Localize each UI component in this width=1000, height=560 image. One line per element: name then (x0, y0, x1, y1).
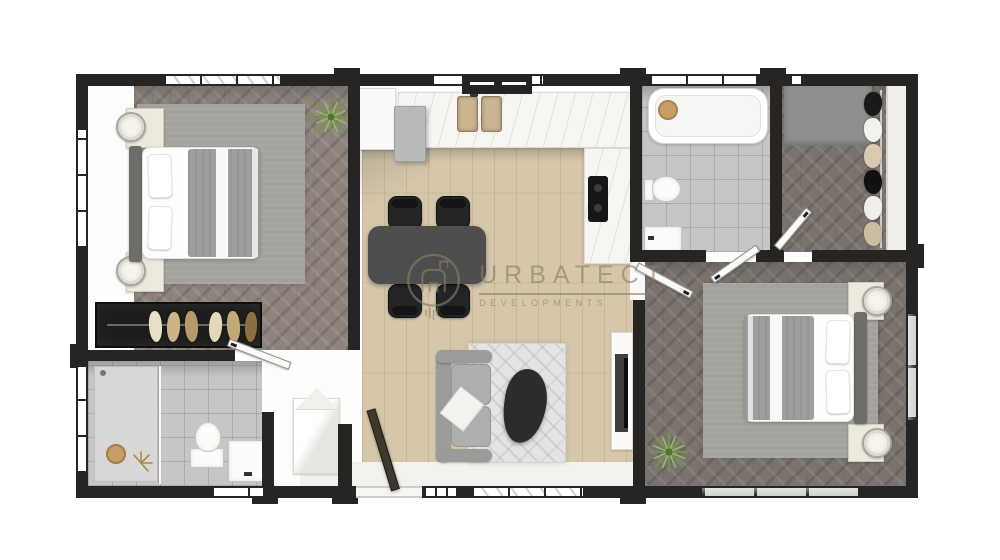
bed-sheet-stripe (252, 149, 258, 257)
dry-branch-decor-icon (126, 448, 156, 478)
exterior-wall (906, 74, 918, 312)
closet-rail (880, 90, 882, 248)
window (210, 486, 265, 498)
table-lamp (862, 428, 892, 458)
interior-wall (348, 84, 360, 350)
hanging-garment (148, 311, 163, 343)
window (76, 128, 88, 250)
vent-slit (502, 82, 526, 85)
hanging-garment (226, 311, 241, 343)
exterior-wall (758, 74, 788, 86)
table-lamp (116, 112, 146, 142)
interior-wall (770, 84, 782, 262)
bed-headboard (854, 312, 867, 424)
bed-headboard (129, 146, 142, 262)
closet-wardrobe-band (886, 86, 906, 252)
window (162, 74, 282, 86)
hanging-garment (166, 312, 181, 343)
fridge (394, 106, 426, 162)
window (788, 74, 803, 86)
toilet-bowl (652, 176, 681, 202)
burner (594, 184, 602, 192)
interior-wall (630, 84, 642, 260)
window (422, 486, 458, 498)
hanging-garment (244, 312, 258, 343)
burner (594, 204, 602, 212)
exterior-wall (585, 486, 700, 498)
wall-pier (620, 498, 646, 504)
interior-wall (338, 424, 352, 486)
window (470, 486, 585, 498)
window (648, 74, 758, 86)
bed-sheet-stripe (748, 316, 753, 420)
vanity-faucet (244, 472, 252, 476)
interior-wall (812, 250, 918, 262)
glazed-window (906, 312, 918, 422)
exterior-wall (545, 74, 648, 86)
exterior-wall (76, 250, 88, 365)
interior-wall (262, 412, 274, 486)
hanging-garment (184, 311, 199, 343)
exterior-wall (803, 74, 918, 86)
toilet-bowl (195, 422, 221, 452)
dining-chair (388, 284, 422, 318)
entry-doorway (356, 486, 422, 498)
dining-chair (388, 196, 422, 230)
wall-pier (252, 498, 278, 504)
kitchen-sink-basin (481, 96, 502, 132)
exterior-wall (265, 486, 356, 498)
kitchen-sink-basin (457, 96, 478, 132)
hanging-garment (208, 312, 223, 343)
closet-grey-mat (784, 86, 872, 146)
table-lamp (862, 286, 892, 316)
exterior-wall (282, 74, 430, 86)
exterior-wall (76, 475, 88, 498)
bed-sheet-stripe (770, 316, 782, 420)
dining-chair (436, 196, 470, 230)
wood-stool (658, 100, 678, 120)
cooktop (588, 176, 608, 222)
exterior-wall (458, 486, 470, 498)
kitchen-tall-cabinet (356, 88, 396, 150)
wood-stool (106, 444, 126, 464)
exterior-wall (76, 74, 162, 86)
sofa-armrest (436, 449, 492, 462)
bed-pillow (147, 206, 173, 251)
shower-glass-panel (158, 366, 161, 484)
bed-pillow (825, 320, 851, 365)
bed-pillow (147, 154, 173, 199)
wall-pier (332, 498, 358, 504)
potted-plant-icon (645, 428, 693, 476)
floor-plan-canvas: URBATECT DEVELOPMENTS (0, 0, 1000, 560)
interior-wall (633, 300, 645, 486)
interior-wall (88, 350, 235, 361)
kitchen-counter-top (398, 92, 632, 148)
tv-screen (624, 358, 628, 428)
sofa-armrest (436, 350, 492, 363)
wall-pier (918, 244, 924, 268)
exterior-wall (76, 486, 210, 498)
dining-table (368, 226, 486, 284)
window (76, 365, 88, 475)
dining-chair (436, 284, 470, 318)
interior-wall (630, 250, 706, 262)
bed-sheet-stripe (216, 149, 228, 257)
glazed-window (700, 486, 860, 498)
vent-slit (470, 82, 494, 85)
window-sill-vent (462, 74, 532, 94)
bed-pillow (825, 370, 851, 415)
sink-faucet (648, 236, 654, 240)
exterior-wall (906, 422, 918, 498)
shower-head (100, 370, 106, 376)
exterior-wall (76, 74, 88, 128)
